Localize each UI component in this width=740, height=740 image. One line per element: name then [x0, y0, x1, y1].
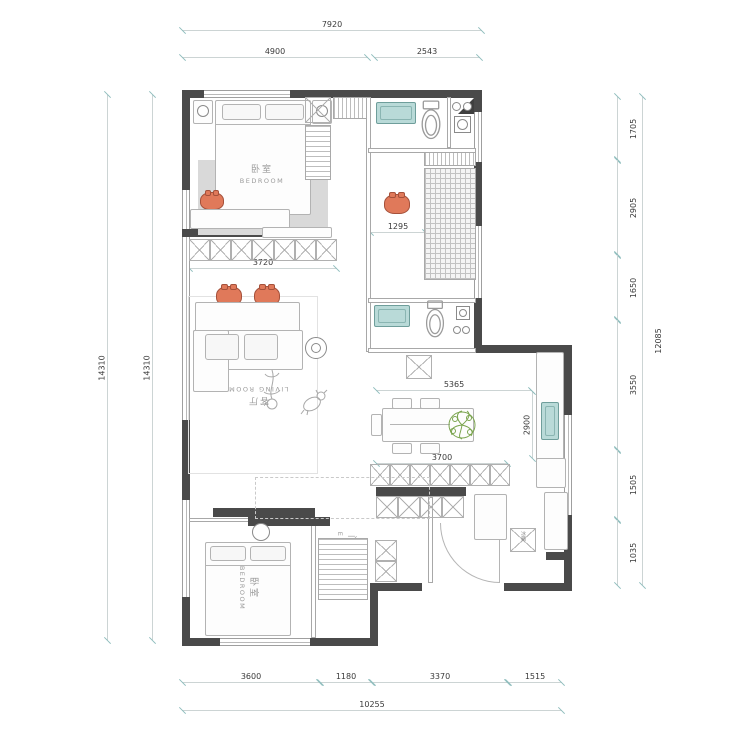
dim-label: 5365 — [442, 380, 466, 389]
living-label: 客厅 LIVING ROOM — [222, 385, 294, 405]
bedroom1-desk-chair — [200, 192, 224, 210]
dim-right-seg4: 3550 — [617, 320, 618, 450]
bedroom1-label: 卧室 BEDROOM — [222, 165, 302, 185]
plant-icon — [443, 406, 481, 444]
dim-right-seg6: 1035 — [617, 520, 618, 585]
partition-laundry — [447, 97, 451, 148]
dim-label: 1705 — [629, 116, 638, 140]
partition-bath2-top — [368, 298, 476, 303]
bedroom1-desk — [190, 209, 290, 229]
dim-bottom-seg3: 3370 — [372, 682, 508, 683]
study-woven-cabinet — [424, 168, 476, 280]
dim-label: 2543 — [415, 47, 439, 56]
sofa-pillow-1 — [205, 334, 239, 360]
dim-right-seg5: 1505 — [617, 450, 618, 520]
bedroom2-wardrobe-rail — [318, 538, 368, 600]
shaft-xbox-dining — [406, 355, 432, 379]
dim-right-overall: 12085 — [642, 97, 643, 585]
dining-chair-left — [371, 414, 382, 436]
wall-right-lower-1 — [564, 345, 572, 415]
wall-right-upper-1 — [474, 90, 482, 112]
dim-bottom-seg4: 1515 — [508, 682, 562, 683]
bedroom1-label-en: BEDROOM — [222, 177, 302, 185]
dining-chair-bottom-2 — [420, 443, 440, 454]
dim-label: 1295 — [386, 222, 410, 231]
dim-left-outer: 14310 — [107, 95, 108, 640]
dim-label: 14310 — [98, 353, 107, 382]
bedroom2-ceiling-fixture — [252, 523, 270, 541]
dim-label: 2900 — [523, 413, 532, 437]
bedroom1-wardrobe-xstrip — [189, 239, 337, 261]
cabinet-right-2 — [544, 492, 568, 550]
wall-bottom-right-1 — [378, 583, 422, 591]
bedroom1-pillow-right — [265, 104, 304, 120]
wall-left-1 — [182, 90, 190, 190]
bath2-toilet-icon — [424, 300, 446, 342]
dim-label: 10255 — [357, 700, 386, 709]
partition-bedroom2-entry — [311, 520, 316, 638]
dim-bottom-seg2: 1180 — [320, 682, 372, 683]
wardrobe-cell — [210, 239, 231, 261]
cabinet-cell — [375, 540, 397, 561]
shaft-xbox-top — [305, 97, 331, 123]
living-floor-lamp-inner — [311, 343, 321, 353]
dim-label: 1650 — [629, 275, 638, 299]
wardrobe-cell — [252, 239, 273, 261]
living-label-en: LIVING ROOM — [222, 385, 294, 393]
dim-label: 3550 — [629, 373, 638, 397]
floor-plan-canvas: 7920 4900 2543 3600 1180 3370 1515 10255… — [0, 0, 740, 740]
dim-left-inner: 14310 — [152, 95, 153, 640]
bedroom1-lamp-left — [197, 105, 209, 117]
dim-label: 3700 — [430, 453, 454, 462]
dim-top-seg2: 2543 — [374, 57, 480, 58]
partition-corridor — [366, 97, 371, 352]
cabinet-cell — [470, 464, 490, 486]
dim-right-seg3: 1650 — [617, 255, 618, 320]
bedroom1-pillow-left — [222, 104, 261, 120]
shelf-striped — [305, 125, 331, 180]
kitchen-island — [474, 494, 507, 540]
wall-bottom-right-2 — [504, 583, 572, 591]
dim-label: 4900 — [263, 47, 287, 56]
dining-chair-bottom-1 — [392, 443, 412, 454]
dim-top-overall: 7920 — [182, 30, 482, 31]
dim-label: 2905 — [629, 195, 638, 219]
window-bedroom2-bottom — [220, 638, 310, 646]
bedroom1-label-zh: 卧室 — [222, 165, 302, 177]
dim-label: 12085 — [654, 326, 663, 355]
dim-bottom-seg1: 3600 — [182, 682, 320, 683]
bedroom1-blanket-line — [216, 124, 310, 125]
dining-table-line — [390, 424, 450, 425]
dim-label: 3600 — [239, 672, 263, 681]
cabinet-cell — [490, 464, 510, 486]
wardrobe-cell — [316, 239, 337, 261]
bedroom2-label-en: BEDROOM — [238, 552, 246, 624]
entry-cabinet-column — [375, 540, 397, 582]
bath2-sink — [374, 305, 410, 327]
counter-sink — [541, 402, 559, 440]
dim-top-seg1: 4900 — [182, 57, 368, 58]
laundry-basin-1 — [452, 102, 461, 111]
cabinet-cell — [450, 464, 470, 486]
study-chair — [384, 194, 410, 214]
window-bedroom1-top — [204, 90, 290, 98]
sofa-pillow-2 — [244, 334, 278, 360]
washing-machine — [454, 116, 471, 133]
dim-label: 1515 — [523, 672, 547, 681]
dim-label: 1505 — [629, 473, 638, 497]
living-label-zh: 客厅 — [222, 393, 294, 405]
wardrobe-cell — [231, 239, 252, 261]
wall-stub-bottom-right — [546, 552, 572, 560]
living-table — [195, 302, 300, 332]
study-cabinet-top — [424, 152, 476, 166]
dim-label: 7920 — [320, 20, 344, 29]
dim-label: 14310 — [143, 353, 152, 382]
bedroom1-counter — [262, 227, 332, 238]
cabinet-right-1 — [536, 458, 566, 488]
cabinet-cell — [375, 561, 397, 582]
wardrobe-cell — [295, 239, 316, 261]
dim-wardrobe-width: 3720 — [189, 268, 337, 269]
dim-label: 1180 — [334, 672, 358, 681]
laundry-basin-2 — [463, 102, 472, 111]
dim-right-seg1: 1705 — [617, 97, 618, 160]
partition-bath2-bottom — [368, 348, 476, 353]
wall-bottom-left-2 — [310, 638, 378, 646]
cabinet-cell — [430, 464, 450, 486]
bath1-toilet-icon — [420, 100, 442, 144]
dim-bottom-overall: 10255 — [182, 710, 562, 711]
bath2-fixture — [456, 306, 470, 320]
dog-figure-icon — [298, 386, 330, 418]
window-bedroom2-left — [182, 500, 190, 597]
dim-right-seg2: 2905 — [617, 160, 618, 255]
closet-striped-top — [333, 97, 367, 119]
bath2-basin-2 — [462, 326, 470, 334]
dim-label: 3370 — [428, 672, 452, 681]
wardrobe-cell — [189, 239, 210, 261]
bedroom2-label-zh: 卧室 — [246, 552, 258, 624]
bath1-sink — [376, 102, 416, 124]
bath2-basin-1 — [453, 326, 461, 334]
bedroom2-label: 卧室 BEDROOM — [238, 552, 258, 624]
wardrobe-cell — [274, 239, 295, 261]
entry-opening-dashed — [255, 477, 430, 519]
cabinet-cell — [442, 496, 464, 518]
fridge-label: 冰箱 — [520, 531, 525, 541]
dim-study-width: 1295 — [370, 232, 426, 233]
wall-bottom-step — [370, 583, 378, 645]
dim-label: 1035 — [629, 540, 638, 564]
dim-counter-depth: 2900 — [532, 392, 533, 458]
wall-bottom-left-1 — [182, 638, 220, 646]
dim-dining-width: 5365 — [376, 390, 532, 391]
